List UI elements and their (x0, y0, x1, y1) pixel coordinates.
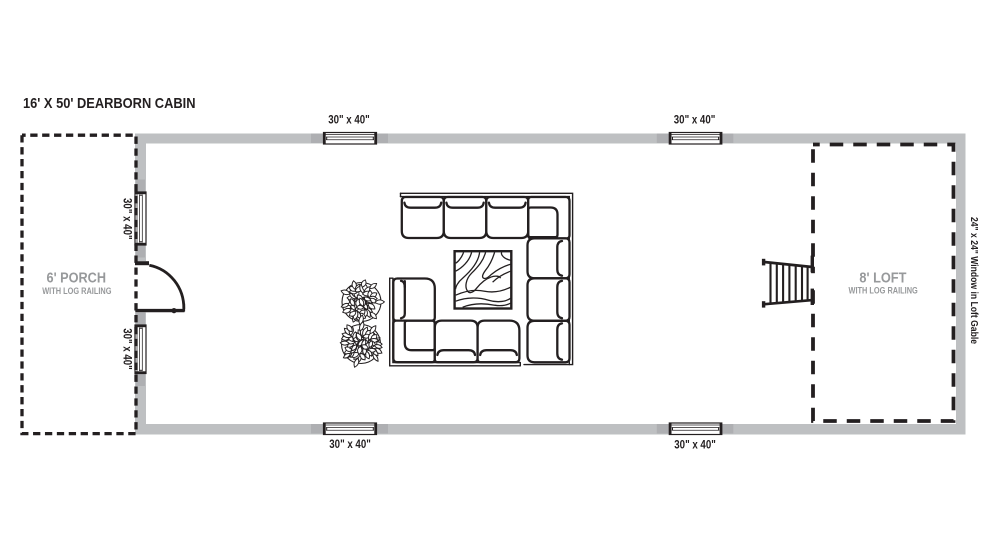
svg-text:24" x 24" Window in Loft Gable: 24" x 24" Window in Loft Gable (968, 217, 979, 344)
svg-text:16' X 50' DEARBORN CABIN: 16' X 50' DEARBORN CABIN (23, 95, 196, 112)
svg-text:WITH LOG RAILING: WITH LOG RAILING (42, 286, 111, 296)
svg-text:30" x 40": 30" x 40" (328, 114, 370, 126)
svg-text:30" x 40": 30" x 40" (674, 440, 716, 452)
svg-text:8' LOFT: 8' LOFT (859, 271, 906, 287)
svg-text:30" x 40": 30" x 40" (674, 114, 716, 126)
svg-text:30" x 40": 30" x 40" (121, 198, 133, 240)
svg-text:6' PORCH: 6' PORCH (47, 271, 107, 287)
svg-text:30" x 40": 30" x 40" (329, 439, 371, 451)
svg-text:30" x 40": 30" x 40" (121, 328, 133, 370)
svg-text:WITH LOG RAILING: WITH LOG RAILING (849, 286, 918, 296)
